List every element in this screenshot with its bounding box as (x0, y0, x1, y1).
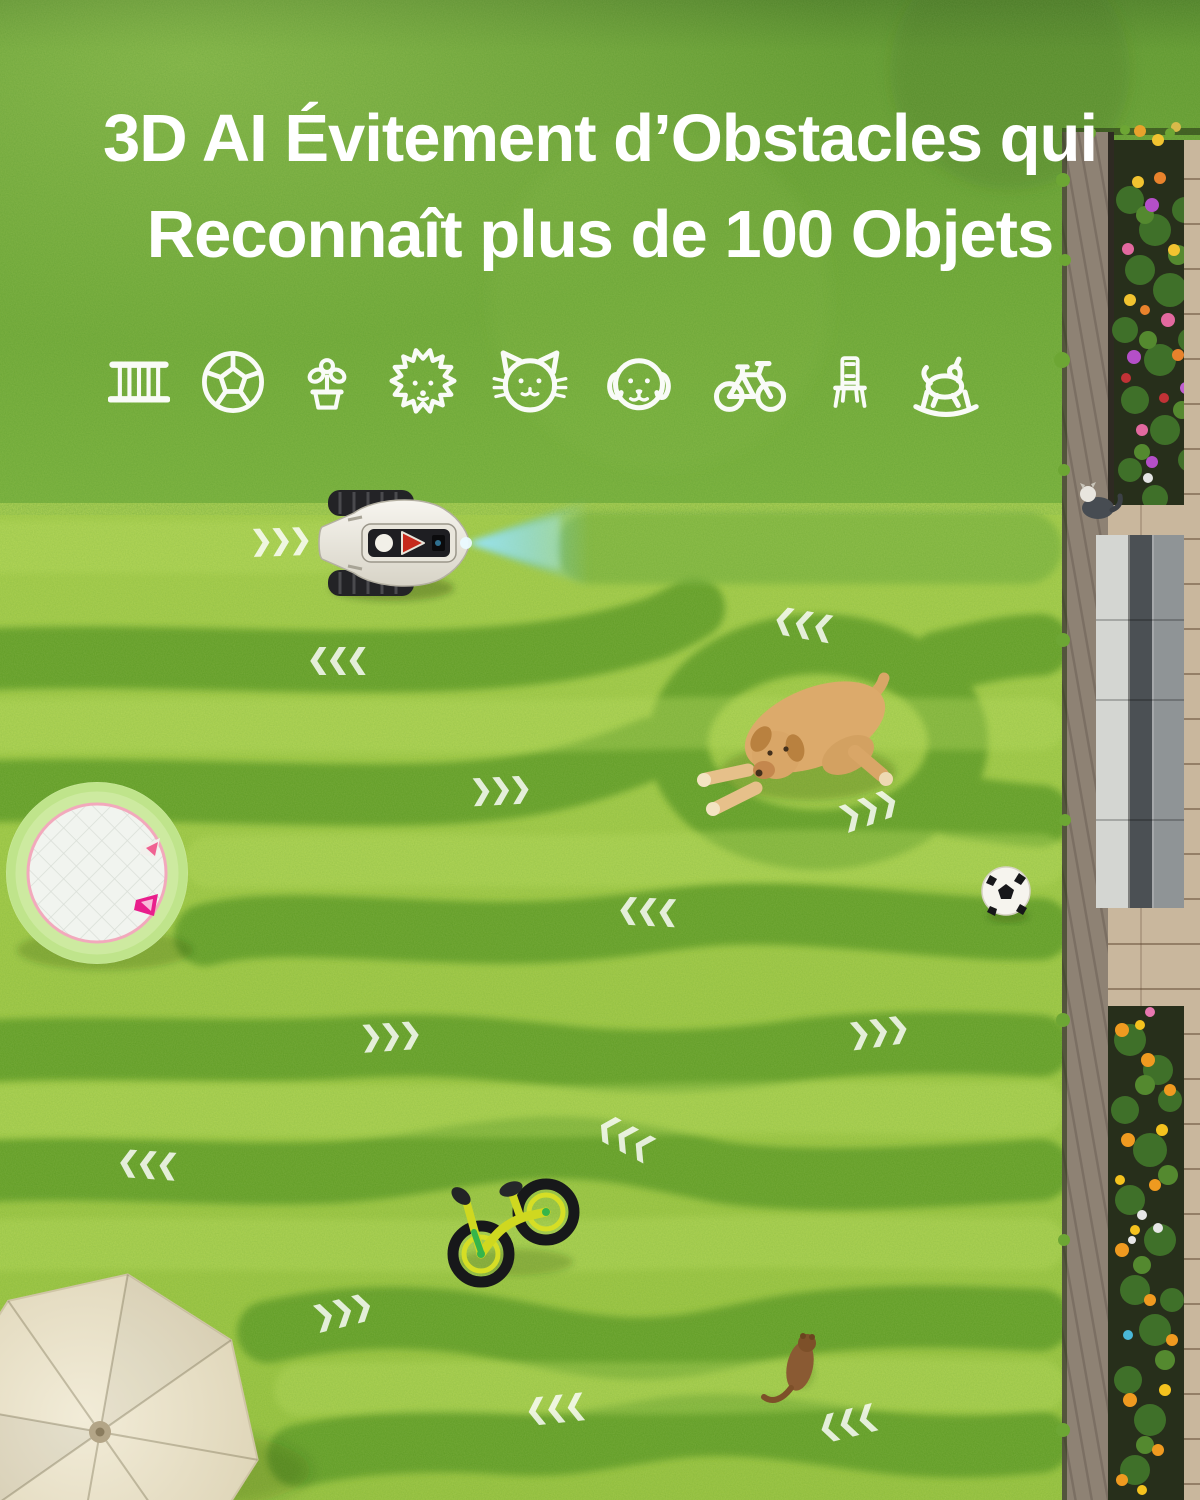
product-marketing-image: 3D AI Évitement d’Obstacles qui Reconnaî… (0, 0, 1200, 1500)
mow-direction-chevron: ❯❯❯ (310, 646, 369, 673)
plank-wall (1184, 140, 1200, 1500)
potted-plant-icon (296, 344, 358, 420)
headline-line-1: 3D AI Évitement d’Obstacles qui (0, 100, 1200, 178)
hedgehog-icon (385, 344, 461, 420)
gray-structure (1096, 535, 1186, 908)
flower-bed-lower (1108, 1006, 1186, 1500)
deck-and-garden (1054, 122, 1200, 1500)
mow-direction-chevron: ❯❯❯ (527, 1391, 588, 1424)
mow-direction-chevron: ❯❯❯ (469, 774, 529, 804)
recognized-objects-icon-row (108, 344, 986, 420)
mower-power-button (375, 534, 393, 552)
cat-icon (488, 344, 572, 420)
fence-icon (108, 344, 170, 420)
soccer-ball-icon (197, 344, 269, 420)
mow-direction-chevron: ❯❯❯ (250, 526, 310, 555)
rocking-horse-icon (906, 344, 986, 420)
mow-direction-chevron: ❯❯❯ (119, 1148, 180, 1179)
mow-direction-chevron: ❯❯❯ (359, 1020, 420, 1051)
mower-front-light (460, 537, 472, 549)
dog-icon (599, 344, 679, 420)
headline: 3D AI Évitement d’Obstacles qui Reconnaî… (0, 100, 1200, 274)
chair-icon (821, 344, 879, 420)
mow-direction-chevron: ❯❯❯ (619, 895, 679, 925)
soccer-ball (982, 867, 1030, 923)
headline-line-2: Reconnaît plus de 100 Objets (0, 196, 1200, 274)
bicycle-icon (706, 344, 794, 420)
